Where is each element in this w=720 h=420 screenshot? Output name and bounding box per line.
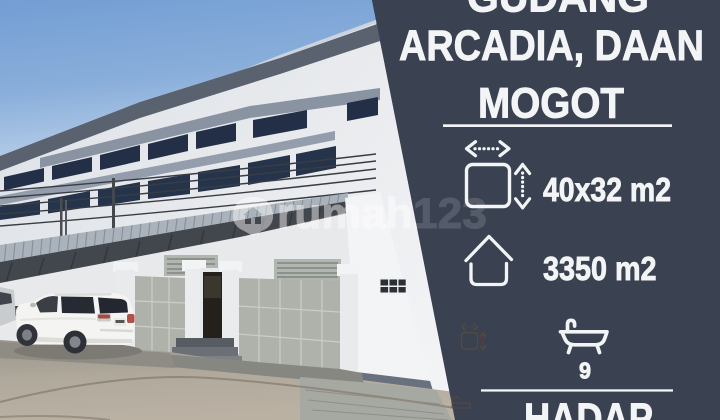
svg-text:MOGOT: MOGOT — [478, 81, 624, 128]
svg-text:9: 9 — [579, 357, 591, 383]
svg-text:GUDANG: GUDANG — [467, 0, 649, 22]
svg-text:ARCADIA, DAAN: ARCADIA, DAAN — [399, 23, 704, 70]
svg-text:3350 m2: 3350 m2 — [543, 250, 657, 288]
svg-text:40x32 m2: 40x32 m2 — [543, 171, 671, 209]
svg-text:HADAP: HADAP — [524, 396, 653, 420]
